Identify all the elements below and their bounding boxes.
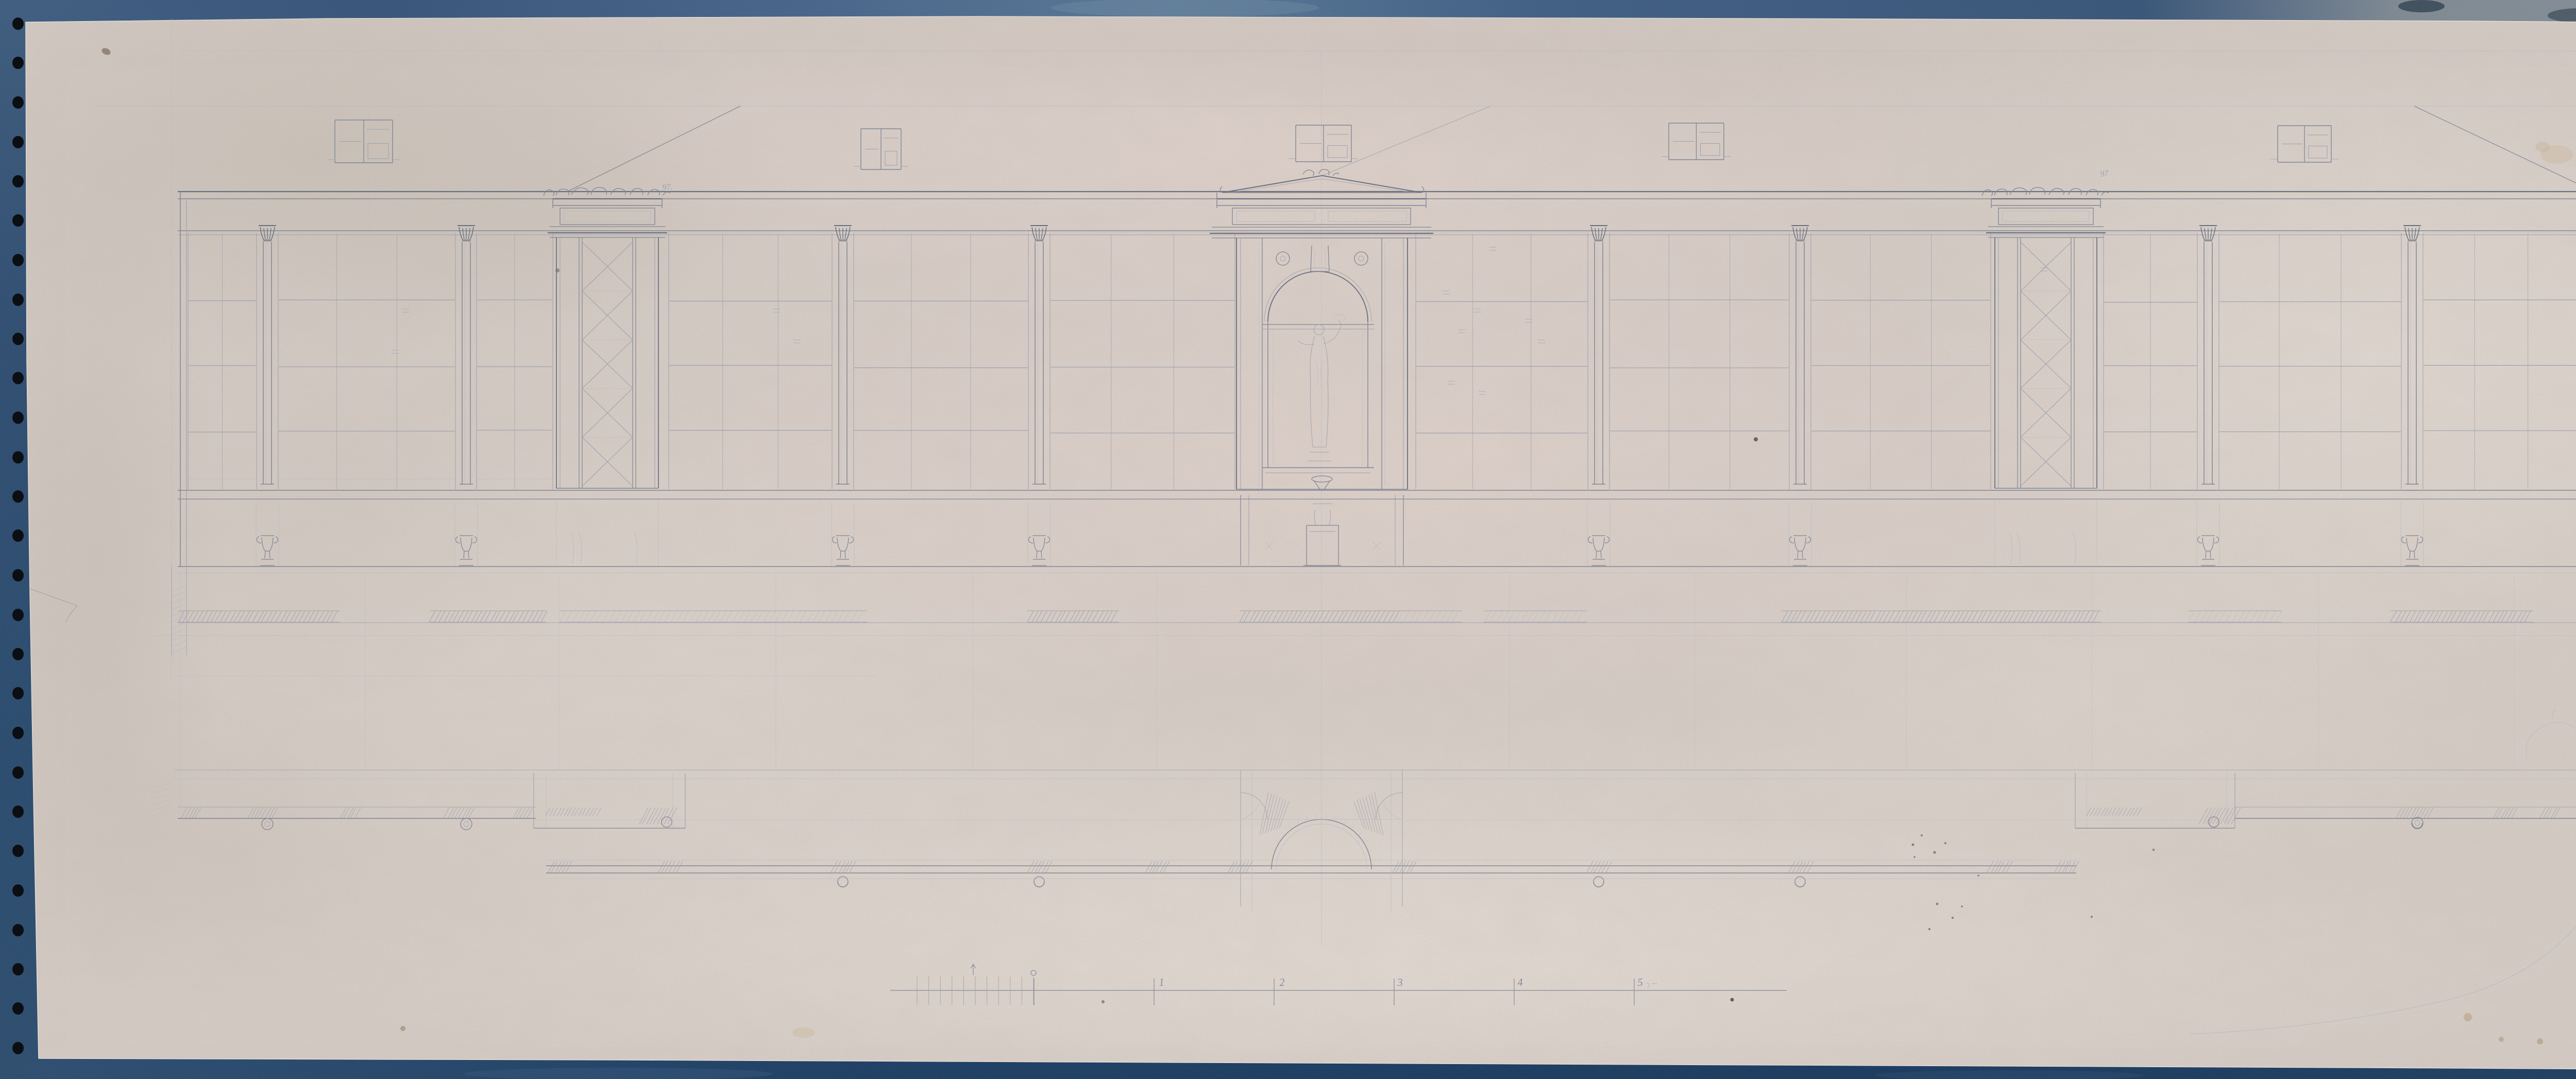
svg-text:1: 1 <box>1158 976 1164 989</box>
svg-text:97: 97 <box>2100 169 2110 179</box>
svg-text:97.: 97. <box>662 182 673 192</box>
svg-text:5: 5 <box>1637 976 1643 989</box>
svg-text:3: 3 <box>1396 976 1403 989</box>
